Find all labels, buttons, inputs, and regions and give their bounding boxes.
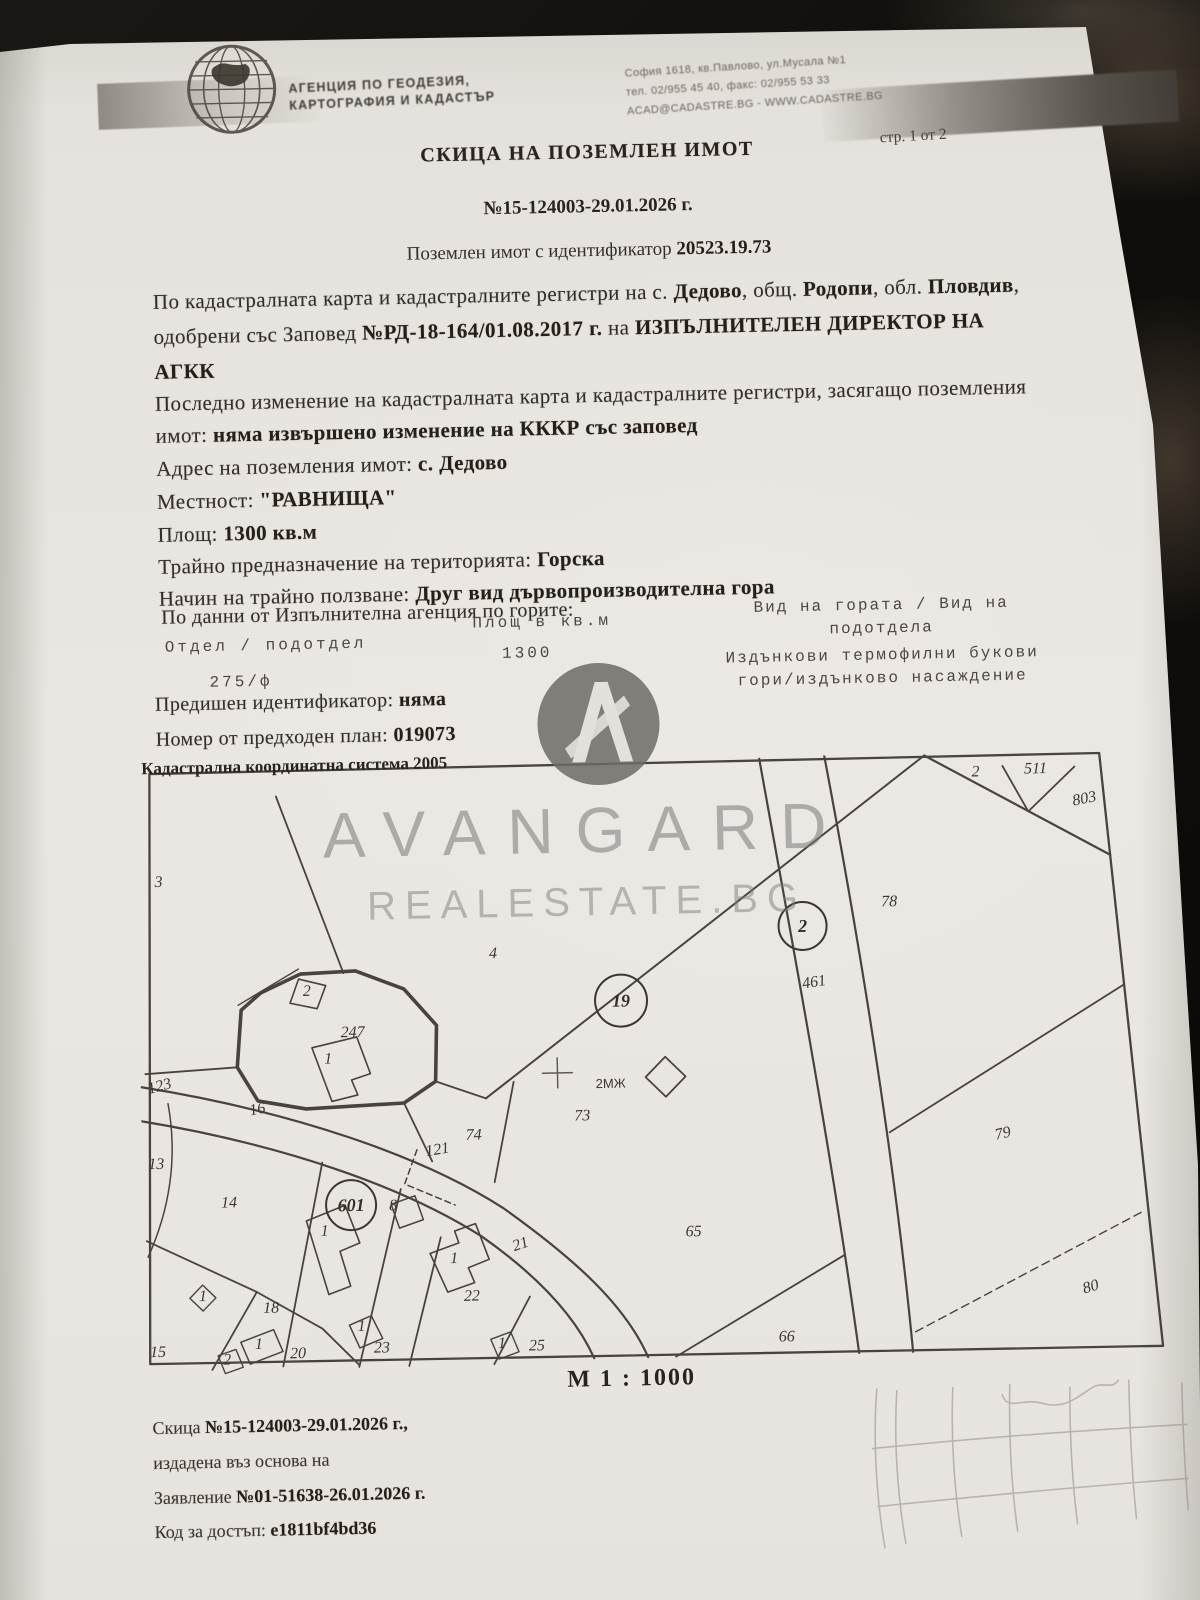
parcel-boundary [147,1237,360,1369]
map-parcel-label: 1 [450,1250,458,1267]
label: Площ: [157,522,223,547]
forest-col3-header: Вид на гората / Вид на подотдела [711,591,1052,644]
parcel-boundary [407,1237,444,1366]
body-line-2: одобрени със Заповед №РД-18-164/01.08.20… [153,308,984,350]
parcel-boundary [211,1292,259,1370]
text: По кадастралната карта и кадастралните р… [153,279,674,313]
map-parcel-label: 13 [148,1156,164,1173]
property-address-line: Адрес на поземления имот: с. Дедово [156,450,508,482]
map-parcel-label: 1 [199,1288,207,1305]
municipality-name: Родопи [803,275,873,300]
label: Адрес на поземления имот: [156,452,418,481]
map-parcel-label: 25 [529,1337,545,1354]
svg-text:601: 601 [337,1195,364,1216]
document-subtitle: Поземлен имот с идентификатор 20523.19.7… [0,228,1189,274]
agency-globe-logo [183,40,281,138]
map-parcel-label: 20 [290,1345,306,1362]
forest-col1-header: Отдел / подотдел [165,635,367,657]
agency-name: АГЕНЦИЯ ПО ГЕОДЕЗИЯ, КАРТОГРАФИЯ И КАДАС… [288,71,496,114]
text: имот: [155,423,213,448]
footer-line-3: Заявление №01-51638-26.01.2026 г. [154,1483,426,1509]
map-parcel-label: 2МЖ [596,1076,626,1092]
prev-plan-line: Номер от предходен план: 019073 [155,723,456,752]
text: , [1013,272,1019,296]
map-parcel-label: 79 [993,1123,1012,1143]
map-parcel-label: 16 [248,1100,267,1120]
body-line-1: По кадастралната карта и кадастралните р… [153,272,1020,314]
map-parcel-label: 74 [466,1126,482,1143]
footer-line-1: Скица №15-124003-29.01.2026 г., [152,1413,408,1439]
map-parcel-label: 2 [971,763,979,780]
map-parcel-label: 22 [464,1288,480,1305]
map-parcel-label: 8 [389,1197,397,1214]
map-parcel-label: 66 [779,1328,795,1345]
subtitle-prefix: Поземлен имот с идентификатор [406,238,676,264]
map-circled-number: 19 [595,974,648,1027]
map-parcel-label: 18 [263,1300,279,1317]
property-address: с. Дедово [418,450,508,476]
building-outline [645,1056,686,1097]
label: Номер от предходен план: [155,724,393,751]
text: , общ. [742,277,804,302]
parcel-boundary [145,1067,237,1074]
map-parcel-label: 2 [303,983,311,1000]
document-number: №15-124003-29.01.2026 г. [0,184,1188,230]
map-parcel-label: 121 [424,1140,450,1161]
footer-line-2: издадена въз основа на [153,1450,330,1475]
body-line-5: имот: няма извършено изменение на КККР с… [155,413,698,449]
map-parcel-label: 1 [324,1050,332,1067]
forest-col1-value: 275/ф [209,673,272,692]
map-parcel-label: 1 [498,1335,506,1352]
map-parcel-label: 247 [340,1024,365,1041]
map-circled-number: 601 [326,1180,377,1231]
access-code: e1811bf4bd36 [270,1518,376,1540]
text: на [602,315,635,340]
page-content: АГЕНЦИЯ ПО ГЕОДЕЗИЯ, КАРТОГРАФИЯ И КАДАС… [0,0,1200,1600]
body-line-3: АГКК [154,359,215,385]
label: Местност: [157,488,260,514]
property-identifier: 20523.19.73 [676,236,771,259]
document-photo: АГЕНЦИЯ ПО ГЕОДЕЗИЯ, КАРТОГРАФИЯ И КАДАС… [0,0,1200,1600]
text: Заявление [154,1486,237,1508]
grid-cross [542,1058,573,1089]
application-number: №01-51638-26.01.2026 г. [236,1483,426,1507]
map-scale: М 1 : 1000 [491,1363,771,1396]
parcel-boundary [493,1082,516,1182]
prev-id-line: Предишен идентификатор: няма [155,688,447,717]
map-parcel-label: 1 [357,1318,365,1335]
locality-line: Местност: "РАВНИЩА" [157,485,397,515]
parcel-boundary [887,985,1127,1133]
text: , обл. [873,274,928,299]
map-parcel-label: 80 [1081,1277,1101,1298]
map-parcel-label: 1 [255,1336,263,1353]
settlement-boundary-247 [235,969,438,1110]
road-edge [142,1077,649,1367]
boundary-double-line [237,969,299,1005]
region-name: Пловдив [928,273,1014,299]
body-line-4: Последно изменение на кадастралната карт… [155,374,1027,416]
purpose-line: Трайно предназначение на територията: Го… [158,546,605,580]
forest-col3-value: Издънкови термофилни букови гори/издънко… [697,641,1068,694]
text: одобрени със Заповед [153,321,362,349]
dashed-boundary [913,1211,1145,1332]
agkk-text: АГКК [154,359,215,384]
parcel-boundary [436,1080,486,1099]
map-parcel-label: 4 [489,945,497,962]
label: Предишен идентификатор: [155,689,399,716]
footer-line-4: Код за достъп: e1811bf4bd36 [154,1518,376,1543]
building-outline [312,1037,371,1102]
map-parcel-label: 14 [221,1194,237,1211]
sketch-number: №15-124003-29.01.2026 г., [205,1413,408,1437]
parcel-boundary [674,1255,846,1356]
map-parcel-label: 511 [1024,760,1047,777]
map-parcel-label: 1 [320,1223,328,1240]
purpose-value: Горска [537,546,605,571]
area-line: Площ: 1300 кв.м [157,520,317,548]
map-parcel-label: 65 [686,1223,702,1240]
map-parcel-label: 21 [510,1234,531,1255]
map-parcel-label: 2 [223,1352,231,1369]
locality-name: "РАВНИЩА" [259,485,397,512]
document-title: СКИЦА НА ПОЗЕМЛЕН ИМОТ [0,129,1187,176]
map-parcel-label: 803 [1071,788,1098,809]
area-value: 1300 кв.м [223,520,317,546]
show-through-grid [857,1370,1191,1562]
map-parcel-label: 23 [374,1339,390,1356]
map-parcel-label: 15 [150,1344,166,1361]
building-outline [429,1223,489,1292]
director-text: ИЗПЪЛНИТЕЛЕН ДИРЕКТОР НА [635,308,985,339]
no-change-note: няма извършено изменение на КККР със зап… [213,413,698,447]
building-outline [306,1205,361,1295]
approval-order: №РД-18-164/01.08.2017 г. [362,316,603,345]
svg-text:19: 19 [612,990,630,1010]
map-parcel-label: 461 [801,972,827,993]
label: Код за достъп: [154,1520,270,1542]
watermark-text: AVANGARD [255,787,916,874]
label: Трайно предназначение на територията: [158,547,537,579]
map-parcel-label: 3 [153,874,162,891]
map-parcel-label: 73 [574,1107,590,1124]
village-name: Дедово [673,278,742,303]
prev-id-value: няма [399,688,447,711]
forest-col2-header: Площ в кв.м [472,612,611,633]
text: Скица [152,1417,205,1438]
watermark-logo-icon [533,659,664,790]
prev-plan-value: 019073 [393,723,456,746]
